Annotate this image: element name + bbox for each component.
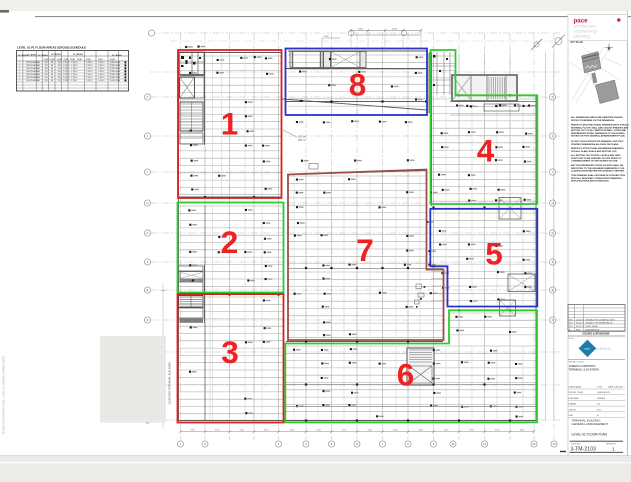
svg-text:8250: 8250	[290, 430, 294, 432]
svg-text:SQM: SQM	[110, 59, 115, 61]
svg-text:1,250.0: 1,250.0	[63, 80, 69, 82]
svg-text:7: 7	[356, 232, 374, 268]
svg-text:120: 120	[45, 62, 48, 64]
svg-text:12,345 SQM: 12,345 SQM	[110, 68, 121, 70]
svg-text:ALL DIMENSIONS ARE IN MILLIMET: ALL DIMENSIONS ARE IN MILLIMETERS UNLESS	[571, 116, 623, 119]
svg-text:120: 120	[45, 68, 48, 70]
svg-text:120: 120	[45, 65, 48, 67]
svg-text:REFERENCED DETAIL DRAWINGS OF: REFERENCED DETAIL DRAWINGS OF THE WORKS	[571, 132, 625, 135]
svg-text:1,130.0: 1,130.0	[71, 80, 77, 82]
svg-text:DRN A.B.: DRN A.B.	[597, 397, 606, 400]
svg-text:REPORTED TO THE ENGINEER IMMED: REPORTED TO THE ENGINEER IMMEDIATELY FOR	[571, 167, 625, 170]
svg-text:DWG NO: DWG NO	[572, 443, 581, 445]
svg-text:8250: 8250	[444, 430, 448, 432]
svg-text:1,304.0: 1,304.0	[98, 62, 104, 64]
svg-text:8: 8	[349, 67, 367, 103]
svg-text:1: 1	[19, 71, 20, 73]
svg-text:planning: planning	[574, 34, 591, 39]
svg-text:NOTED OTHERWISE ON THE DRAWING: NOTED OTHERWISE ON THE DRAWINGS.	[571, 119, 615, 122]
svg-text:DO NOT SCALE FROM THIS DRAWING: DO NOT SCALE FROM THIS DRAWING. USE ONLY	[571, 140, 624, 143]
svg-text:KEY PLAN: KEY PLAN	[571, 41, 583, 44]
svg-text:120: 120	[45, 80, 48, 82]
svg-text:LOGO: LOGO	[569, 338, 575, 340]
svg-text:88: 88	[51, 77, 53, 79]
svg-text:1,250.0: 1,250.0	[63, 68, 69, 70]
svg-text:4: 4	[477, 133, 495, 169]
svg-text:CHECKED BY: CHECKED BY	[597, 392, 611, 394]
svg-text:1: 1	[19, 62, 20, 64]
svg-text:ISSUED FOR REVIEW AB CD: ISSUED FOR REVIEW AB CD	[586, 322, 614, 325]
svg-text:01: 01	[38, 71, 40, 73]
svg-text:1: 1	[612, 446, 615, 451]
svg-text:SQM: SQM	[77, 59, 82, 61]
svg-text:1,304.0: 1,304.0	[98, 65, 104, 67]
svg-text:202 m: 202 m	[298, 138, 305, 142]
svg-text:E: E	[552, 288, 554, 292]
svg-text:DESIGNED: DESIGNED	[569, 398, 580, 400]
svg-text:134: 134	[58, 77, 61, 79]
svg-text:01: 01	[38, 74, 40, 76]
svg-text:FOR ALL SLAB LEVELS AND SETTIN: FOR ALL SLAB LEVELS AND SETTING OUT.	[571, 150, 617, 153]
svg-text:NO AREA: NO AREA	[51, 53, 61, 56]
svg-text:SQM: SQM	[50, 59, 55, 61]
svg-text:1,250.0: 1,250.0	[63, 77, 69, 79]
svg-text:H: H	[147, 201, 149, 205]
svg-text:DATE: DATE	[608, 386, 614, 389]
svg-text:1,304.0: 1,304.0	[98, 80, 104, 82]
svg-text:134: 134	[58, 80, 61, 82]
svg-text:18.02.21: 18.02.21	[576, 323, 585, 325]
svg-text:1,245.0: 1,245.0	[86, 77, 92, 79]
svg-text:PROJECT MGR: PROJECT MGR	[569, 392, 584, 394]
svg-text:ANY DISCREPANCIES FOUND ON SIT: ANY DISCREPANCIES FOUND ON SITE SHALL BE	[571, 164, 624, 167]
svg-text:01: 01	[38, 77, 40, 79]
svg-text:12,345 SQM: 12,345 SQM	[110, 74, 121, 76]
svg-text:SHOWN ON THIS GENERAL ARRANGEM: SHOWN ON THIS GENERAL ARRANGEMENT PLAN.	[571, 135, 625, 138]
svg-text:UNIT: UNIT	[569, 415, 574, 417]
svg-text:S.K.: S.K.	[597, 404, 601, 406]
svg-text:NO AREA: NO AREA	[38, 54, 48, 57]
svg-text:SQM: SQM	[64, 59, 69, 61]
svg-text:1: 1	[19, 65, 20, 67]
svg-text:05.01.21: 05.01.21	[576, 326, 585, 328]
svg-text:1,250.0: 1,250.0	[63, 74, 69, 76]
svg-text:SQM: SQM	[98, 59, 103, 61]
svg-text:8250: 8250	[240, 430, 244, 432]
svg-text:REFER TO ARCHITECTURAL FINISHE: REFER TO ARCHITECTURAL FINISHES DWGS FOR…	[571, 124, 630, 127]
svg-text:8250: 8250	[342, 430, 346, 432]
svg-text:NO AREA: NO AREA	[112, 54, 122, 57]
svg-text:REVISION: REVISION	[606, 443, 616, 445]
svg-text:POSITIONS TO BE VERIFIED ON SI: POSITIONS TO BE VERIFIED ON SITE PRIOR T…	[571, 158, 622, 160]
svg-text:SQM: SQM	[44, 59, 49, 61]
svg-text:SQM: SQM	[86, 59, 91, 61]
svg-text:8250: 8250	[264, 430, 268, 432]
svg-text:88: 88	[51, 80, 53, 82]
svg-text:1,304.0: 1,304.0	[98, 71, 104, 73]
svg-text:DRAWN: DRAWN	[569, 403, 577, 406]
svg-text:1,304.0: 1,304.0	[98, 68, 104, 70]
svg-text:12,345 SQM: 12,345 SQM	[110, 65, 121, 67]
svg-text:88: 88	[51, 62, 53, 64]
svg-text:1,130.0: 1,130.0	[71, 74, 77, 76]
svg-text:ISSUES & REVISIONS: ISSUES & REVISIONS	[583, 332, 610, 336]
svg-text:H: H	[552, 201, 554, 205]
svg-text:SPECIFICATIONS AND SCHEDULES.: SPECIFICATIONS AND SCHEDULES.	[571, 180, 610, 183]
svg-text:88: 88	[51, 68, 53, 70]
svg-text:3-TM-2103: 3-TM-2103	[571, 446, 596, 452]
svg-text:SETTING OUT OF ALL PARTITION W: SETTING OUT OF ALL PARTITION WALL TYPES …	[571, 129, 627, 132]
svg-text:2750: 2750	[358, 29, 364, 31]
svg-text:1,304.0: 1,304.0	[98, 74, 104, 76]
svg-text:134: 134	[58, 68, 61, 70]
svg-text:G: G	[551, 231, 553, 235]
svg-text:8250: 8250	[495, 430, 499, 432]
svg-text:88: 88	[51, 74, 53, 76]
svg-text:K: K	[552, 95, 554, 99]
svg-text:ALEMCO: ALEMCO	[596, 347, 611, 351]
svg-text:COMMENCEMENT OF ANY WORKS ON S: COMMENCEMENT OF ANY WORKS ON SITE.	[571, 160, 618, 163]
svg-text:134: 134	[58, 65, 61, 67]
svg-text:FIRST ISSUE: FIRST ISSUE	[586, 326, 599, 328]
svg-text:12,345 SQM: 12,345 SQM	[110, 62, 121, 64]
svg-text:1:250: 1:250	[597, 387, 603, 389]
svg-text:01: 01	[38, 65, 40, 67]
svg-text:12,345 SQM: 12,345 SQM	[110, 77, 121, 79]
svg-text:134: 134	[58, 62, 61, 64]
svg-text:8250: 8250	[520, 430, 524, 432]
svg-text:12,345 SQM: 12,345 SQM	[110, 71, 121, 73]
svg-text:1: 1	[19, 77, 20, 79]
svg-text:K: K	[147, 95, 149, 99]
svg-text:D: D	[552, 318, 554, 322]
svg-text:NO AREA: NO AREA	[73, 53, 83, 56]
svg-text:LEVEL 01 P1 FLOOR AREAS (GRO: LEVEL 01 P1 FLOOR AREAS (GROSS) SCHEDULE	[17, 46, 86, 50]
svg-text:WITH ALL RELEVANT CONSULTANT D: WITH ALL RELEVANT CONSULTANT DRAWINGS,	[571, 177, 623, 180]
svg-text:NO AREA: NO AREA	[27, 54, 37, 57]
svg-text:120: 120	[45, 77, 48, 79]
svg-text:120: 120	[45, 71, 48, 73]
svg-text:1,130.0: 1,130.0	[71, 68, 77, 70]
svg-text:ISSUED FOR CONSTRUCTION - LEVE: ISSUED FOR CONSTRUCTION - LEVEL 01 GENER…	[3, 355, 6, 434]
svg-text:12.04.21: 12.04.21	[576, 319, 585, 321]
svg-text:CLARIFICATION BEFORE PROCEEDIN: CLARIFICATION BEFORE PROCEEDING FURTHER.	[571, 170, 625, 173]
svg-text:ALL SETTING OUT POINTS, LEVELS: ALL SETTING OUT POINTS, LEVELS AND GRID	[571, 154, 621, 157]
svg-text:pace: pace	[585, 347, 591, 350]
svg-text:1,250.0: 1,250.0	[63, 65, 69, 67]
svg-text:1: 1	[221, 106, 239, 142]
svg-text:8250: 8250	[470, 430, 474, 432]
svg-text:INTERNAL FLOOR, WALL AND CEILI: INTERNAL FLOOR, WALL AND CEILING FINISHE…	[571, 126, 629, 129]
svg-text:1,304.0: 1,304.0	[98, 77, 104, 79]
svg-text:01: 01	[38, 80, 40, 82]
svg-text:JOB NO: JOB NO	[569, 409, 577, 411]
svg-text:134: 134	[58, 74, 61, 76]
svg-text:SCALE (A0M): SCALE (A0M)	[569, 386, 582, 389]
svg-text:1,250.0: 1,250.0	[63, 71, 69, 73]
svg-text:01: 01	[38, 68, 40, 70]
svg-text:1: 1	[19, 74, 20, 76]
svg-text:EXISTING TERMINAL BUILDING: EXISTING TERMINAL BUILDING	[167, 362, 171, 404]
svg-text:REFER TO STRUCTURAL ENGINEERS: REFER TO STRUCTURAL ENGINEERS DRAWINGS	[571, 147, 624, 150]
svg-text:1,245.0: 1,245.0	[86, 65, 92, 67]
svg-text:1: 1	[19, 68, 20, 70]
svg-text:1,245.0: 1,245.0	[86, 62, 92, 64]
svg-text:1,130.0: 1,130.0	[71, 77, 77, 79]
svg-text:8250: 8250	[317, 430, 321, 432]
svg-text:8250: 8250	[419, 430, 423, 432]
svg-text:8250: 8250	[215, 430, 219, 432]
svg-text:12,345 SQM: 12,345 SQM	[110, 80, 121, 82]
svg-text:134: 134	[58, 71, 61, 73]
svg-text:1,130.0: 1,130.0	[71, 71, 77, 73]
svg-text:88: 88	[51, 65, 53, 67]
svg-text:LEVEL 01 FLOOR PLAN: LEVEL 01 FLOOR PLAN	[572, 432, 608, 436]
svg-text:SQM: SQM	[70, 59, 75, 61]
svg-text:3: 3	[221, 334, 239, 370]
svg-text:2: 2	[221, 224, 239, 260]
svg-text:THIS DRAWING SHALL BE READ IN: THIS DRAWING SHALL BE READ IN CONJUNCTIO…	[571, 174, 625, 177]
svg-text:01: 01	[38, 62, 40, 64]
svg-text:8250: 8250	[191, 430, 195, 432]
svg-text:SQM: SQM	[57, 59, 62, 61]
svg-text:1,245.0: 1,245.0	[86, 74, 92, 76]
svg-text:2750: 2750	[392, 29, 398, 31]
svg-text:JUN 2020: JUN 2020	[614, 387, 624, 389]
svg-text:D: D	[147, 318, 149, 322]
svg-text:ISSUED FOR CONSTRUCTION: ISSUED FOR CONSTRUCTION	[586, 319, 615, 321]
svg-text:1,245.0: 1,245.0	[86, 80, 92, 82]
svg-text:G: G	[146, 231, 148, 235]
svg-text:5: 5	[485, 236, 503, 272]
svg-text:1,245.0: 1,245.0	[86, 71, 92, 73]
svg-text:E: E	[147, 288, 149, 292]
svg-text:8250: 8250	[393, 430, 397, 432]
svg-text:1,250.0: 1,250.0	[63, 62, 69, 64]
svg-text:FIGURED DIMENSIONS AS GIVEN ON: FIGURED DIMENSIONS AS GIVEN ON PLANS.	[571, 143, 619, 146]
svg-text:120: 120	[45, 74, 48, 76]
svg-text:88: 88	[51, 71, 53, 73]
svg-text:GENERAL ARRANGEMENT: GENERAL ARRANGEMENT	[572, 422, 609, 426]
svg-text:1: 1	[19, 80, 20, 82]
svg-text:TERMINAL & EASTERN: TERMINAL & EASTERN	[569, 367, 600, 371]
svg-text:1,130.0: 1,130.0	[71, 62, 77, 64]
svg-text:8250: 8250	[368, 430, 372, 432]
svg-text:1,245.0: 1,245.0	[86, 68, 92, 70]
svg-text:1,130.0: 1,130.0	[71, 65, 77, 67]
svg-text:6: 6	[397, 357, 415, 393]
svg-text:1520: 1520	[324, 36, 330, 38]
